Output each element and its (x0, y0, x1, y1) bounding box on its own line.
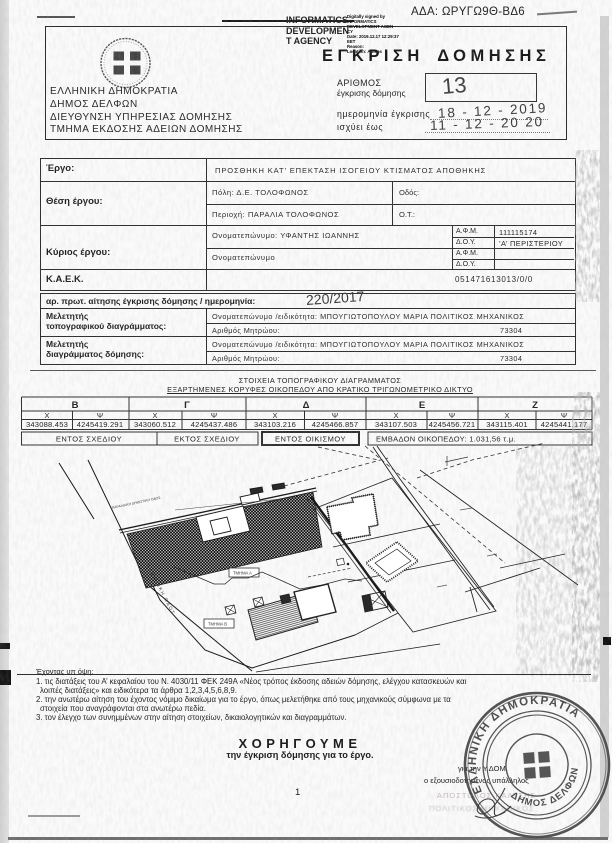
svg-text:ΤΜΗΜΑ Α: ΤΜΗΜΑ Α (233, 571, 252, 576)
svg-text:ΤΜΗΜΑ Β: ΤΜΗΜΑ Β (208, 622, 227, 627)
